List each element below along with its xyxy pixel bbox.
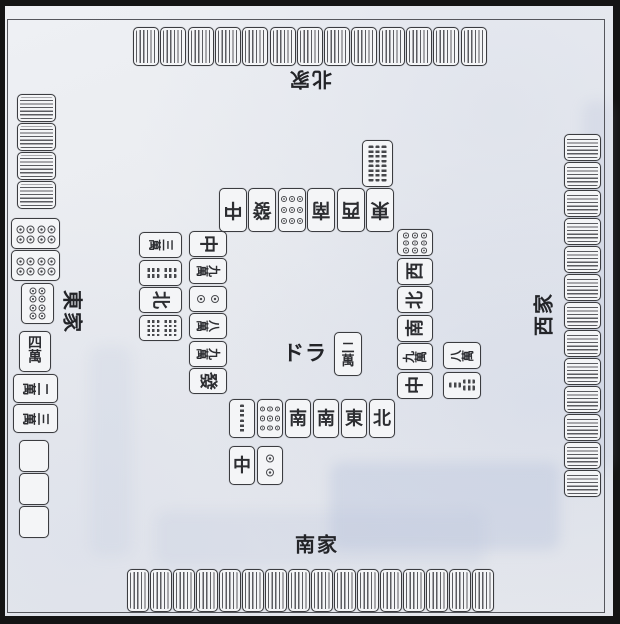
- tile-layer: 四 萬二 萬三 萬三 萬北中九 萬八 萬九 萬發中發南西東西北南九 萬中八 萬二…: [0, 0, 620, 624]
- table-layer: 北家 南家 東家 西家 ドラ 四 萬二 萬三 萬三 萬北中九 萬八 萬九 萬發中…: [0, 0, 620, 624]
- south-discards-row2: 中: [0, 0, 620, 624]
- tile-2-pin: [257, 446, 283, 485]
- tile-chun: 中: [229, 446, 255, 485]
- book-photo: 北家 南家 東家 西家 ドラ 四 萬二 萬三 萬三 萬北中九 萬八 萬九 萬發中…: [0, 0, 620, 624]
